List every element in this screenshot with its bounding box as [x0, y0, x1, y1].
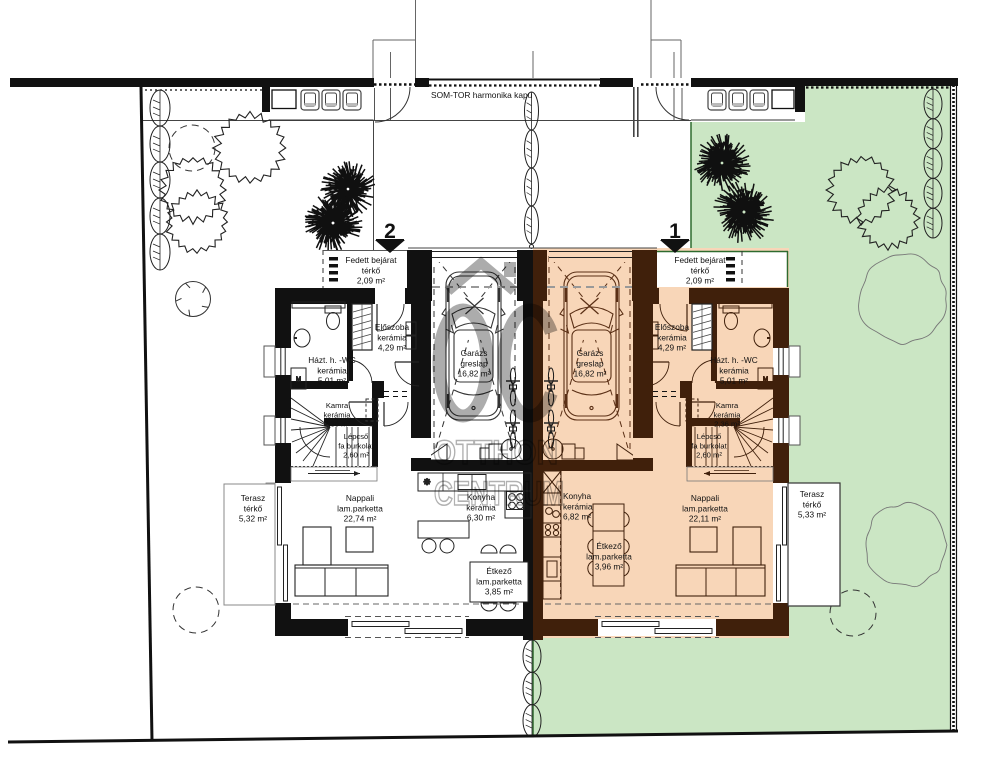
svg-text:22,74 m²: 22,74 m²: [344, 514, 377, 524]
svg-text:3,85 m²: 3,85 m²: [485, 587, 513, 597]
svg-text:Konyha: Konyha: [563, 491, 592, 501]
svg-text:Kamra: Kamra: [326, 401, 349, 410]
svg-text:5,33 m²: 5,33 m²: [798, 510, 826, 520]
svg-text:térkő: térkő: [803, 499, 822, 509]
svg-text:fa burkolat: fa burkolat: [691, 441, 727, 450]
svg-text:Étkező: Étkező: [596, 541, 622, 551]
svg-text:Lépcső: Lépcső: [697, 432, 722, 441]
svg-text:kerámia: kerámia: [657, 332, 687, 342]
svg-text:Terasz: Terasz: [241, 493, 265, 503]
svg-text:lam.parketta: lam.parketta: [337, 503, 383, 513]
svg-text:Fedett bejárat: Fedett bejárat: [674, 255, 726, 265]
svg-text:Előszoba: Előszoba: [655, 322, 690, 332]
svg-text:2,09 m²: 2,09 m²: [686, 276, 714, 286]
svg-text:lam.parketta: lam.parketta: [682, 503, 728, 513]
svg-text:kerámia: kerámia: [323, 410, 351, 419]
svg-text:térkő: térkő: [244, 503, 263, 513]
svg-text:kerámia: kerámia: [317, 365, 347, 375]
svg-text:4,29 m²: 4,29 m²: [378, 343, 406, 353]
svg-text:Házt. h. -WC: Házt. h. -WC: [308, 355, 355, 365]
svg-text:Étkező: Étkező: [486, 566, 512, 576]
svg-text:3,96 m²: 3,96 m²: [595, 562, 623, 572]
svg-text:6,30 m²: 6,30 m²: [467, 513, 495, 523]
svg-text:Fedett bejárat: Fedett bejárat: [345, 255, 397, 265]
svg-text:M: M: [763, 377, 768, 383]
svg-text:Házt. h. -WC: Házt. h. -WC: [710, 355, 757, 365]
svg-text:4,29 m²: 4,29 m²: [658, 343, 686, 353]
svg-text:5,01 m²: 5,01 m²: [318, 376, 346, 386]
svg-text:kerámia: kerámia: [563, 501, 593, 511]
svg-text:CENTRUM: CENTRUM: [434, 475, 564, 513]
svg-text:Garázs: Garázs: [577, 348, 604, 358]
svg-text:Kamra: Kamra: [716, 401, 739, 410]
svg-text:❋: ❋: [423, 477, 431, 487]
svg-text:Nappali: Nappali: [691, 493, 719, 503]
svg-text:Lépcső: Lépcső: [344, 432, 369, 441]
svg-text:OTTHON: OTTHON: [433, 434, 558, 472]
svg-text:kerámia: kerámia: [377, 332, 407, 342]
svg-text:kerámia: kerámia: [719, 365, 749, 375]
svg-text:Terasz: Terasz: [800, 489, 824, 499]
svg-text:kerámia: kerámia: [713, 410, 741, 419]
svg-text:22,11 m²: 22,11 m²: [689, 514, 721, 524]
svg-text:lam.parketta: lam.parketta: [586, 551, 632, 561]
svg-text:2,36 m²: 2,36 m²: [714, 420, 740, 429]
svg-text:Nappali: Nappali: [346, 493, 374, 503]
svg-text:fa burkolat: fa burkolat: [338, 441, 374, 450]
svg-text:Előszoba: Előszoba: [375, 322, 410, 332]
svg-text:2,60 m²: 2,60 m²: [343, 451, 369, 460]
svg-text:2,09 m²: 2,09 m²: [357, 276, 385, 286]
svg-text:greslap: greslap: [576, 358, 604, 368]
svg-text:M: M: [296, 377, 301, 383]
svg-text:térkő: térkő: [691, 265, 710, 275]
svg-text:2,60 m²: 2,60 m²: [696, 451, 722, 460]
svg-text:lam.parketta: lam.parketta: [476, 576, 522, 586]
svg-text:2,36 m²: 2,36 m²: [324, 420, 350, 429]
svg-text:16,82 m²: 16,82 m²: [574, 369, 607, 379]
svg-text:5,01 m²: 5,01 m²: [720, 376, 748, 386]
svg-text:SOM-TOR harmonika kapu: SOM-TOR harmonika kapu: [431, 90, 533, 100]
svg-text:5,32 m²: 5,32 m²: [239, 514, 267, 524]
svg-text:térkő: térkő: [362, 265, 381, 275]
svg-text:6,82 m²: 6,82 m²: [563, 512, 591, 522]
